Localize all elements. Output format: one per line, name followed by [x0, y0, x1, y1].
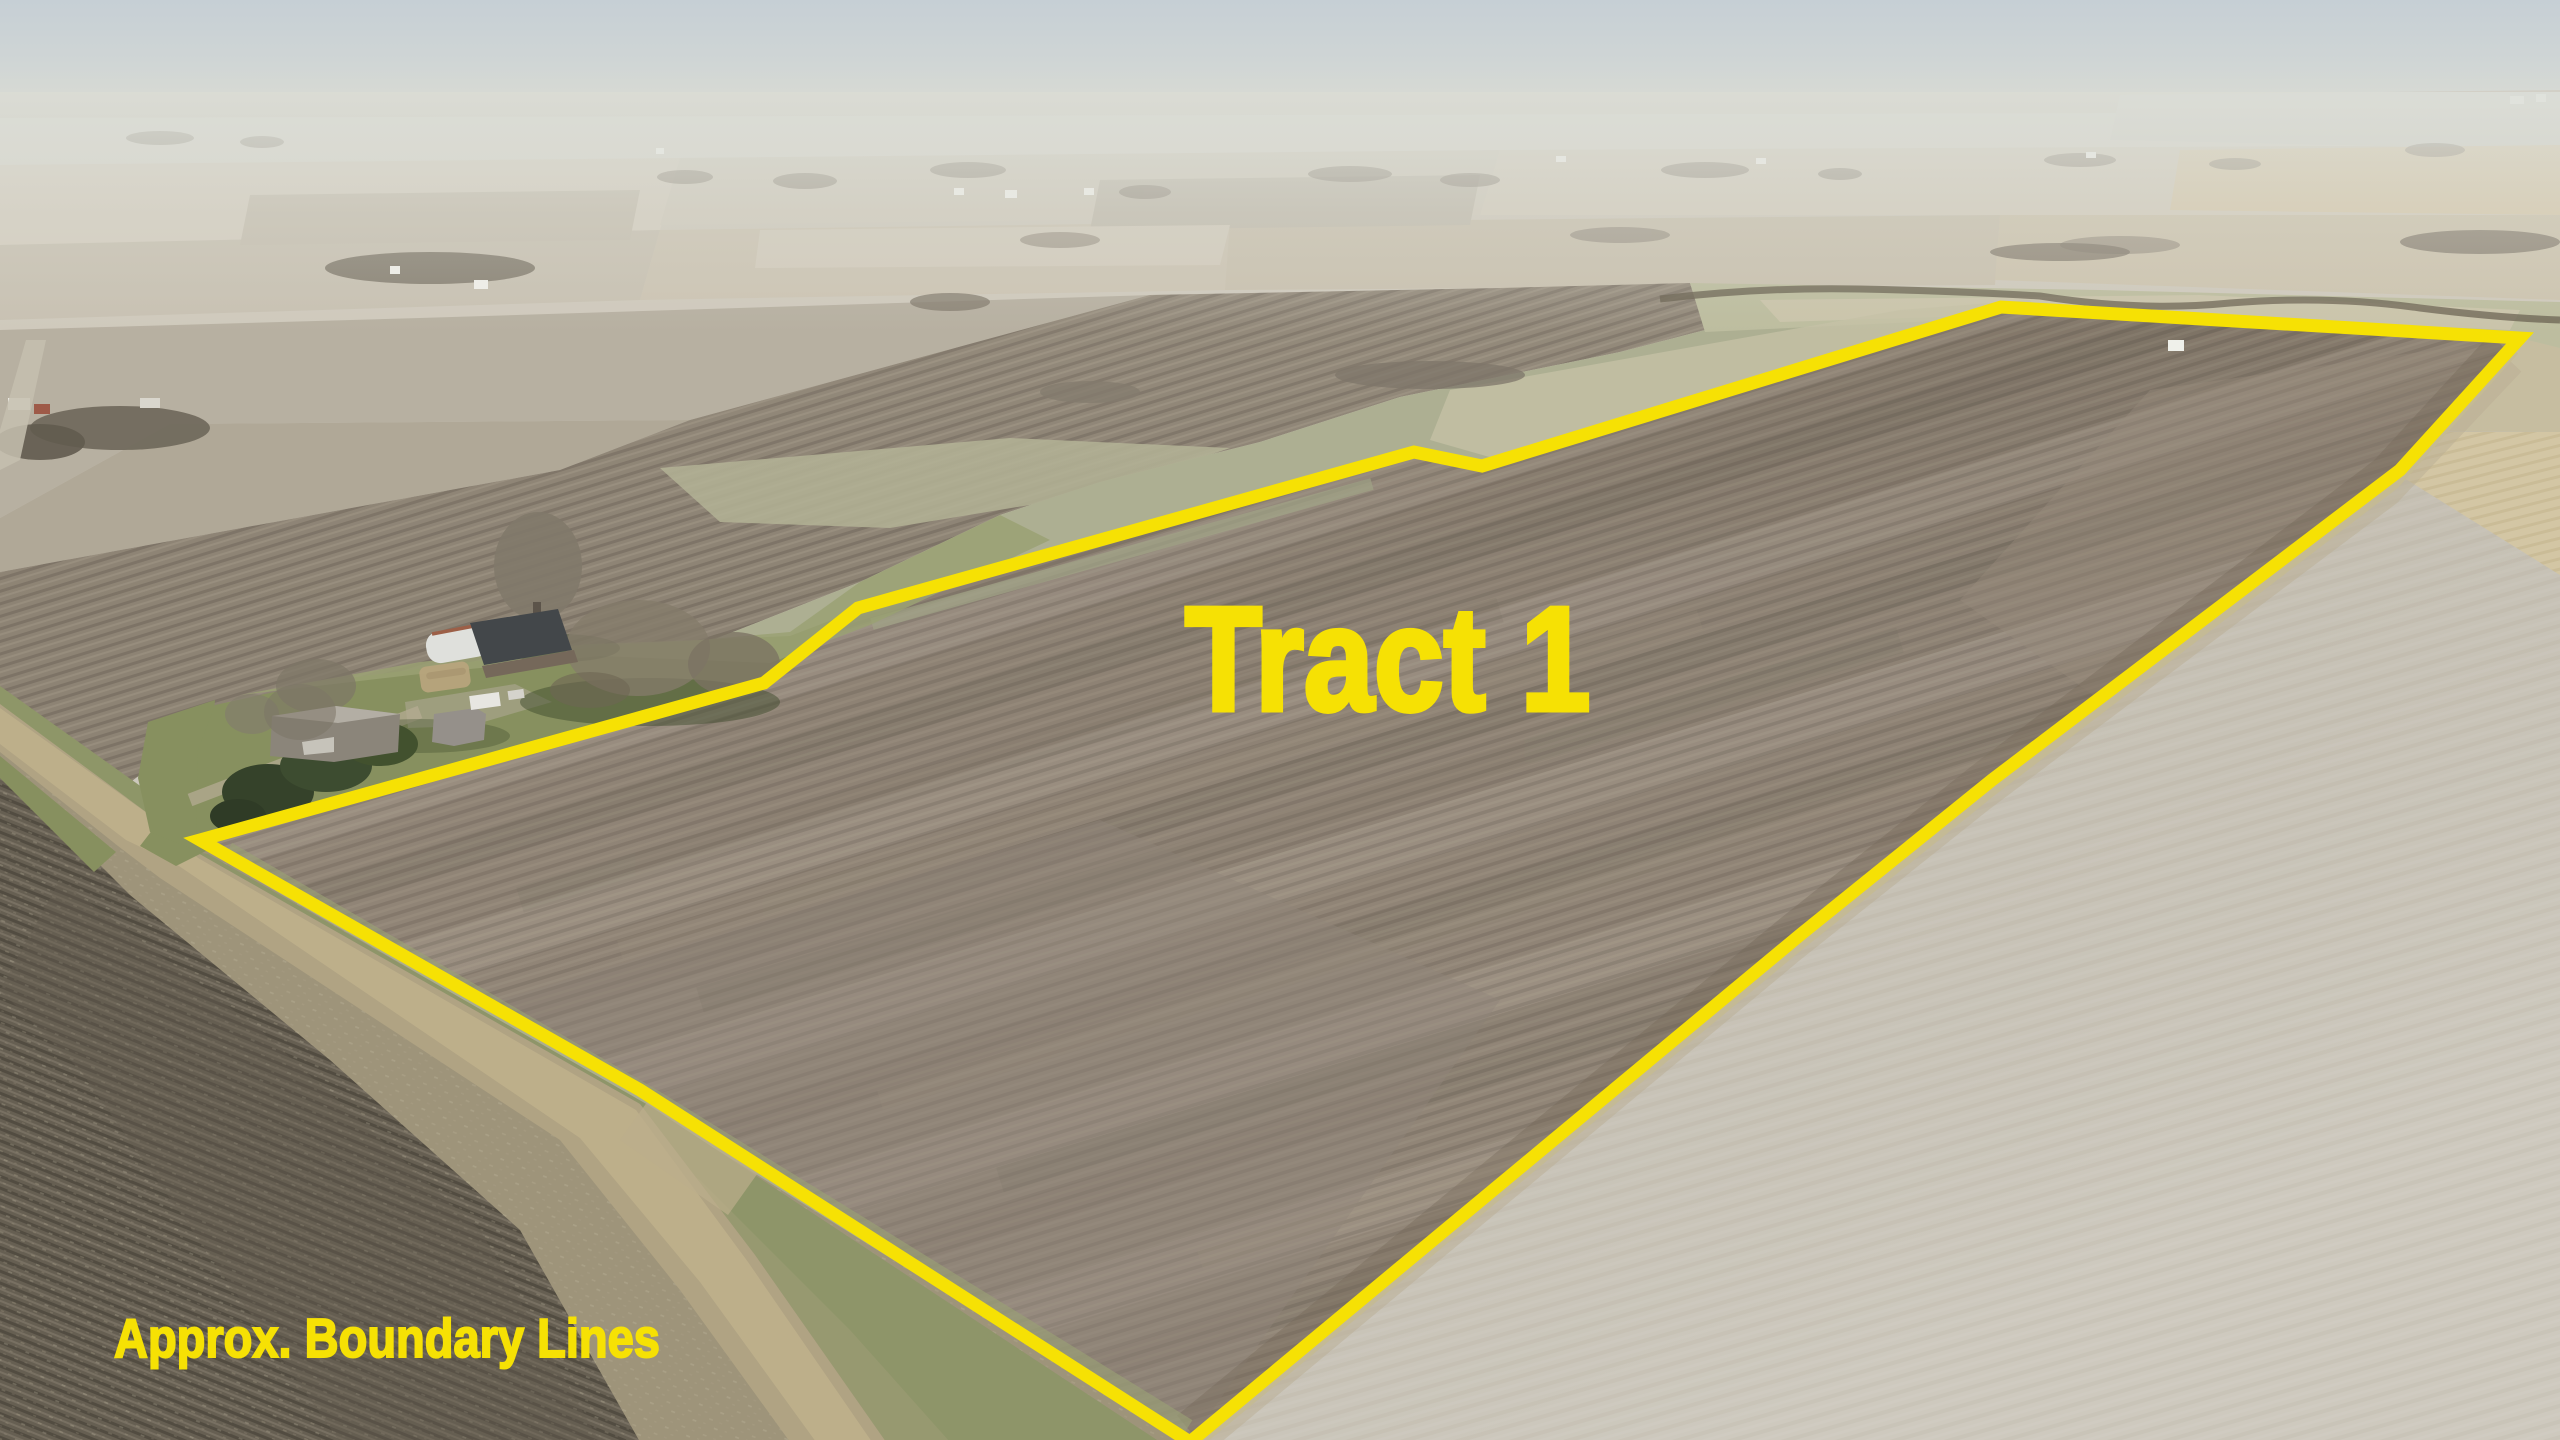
- svg-text:Approx. Boundary Lines: Approx. Boundary Lines: [114, 1308, 660, 1369]
- svg-text:Tract 1: Tract 1: [1185, 577, 1591, 742]
